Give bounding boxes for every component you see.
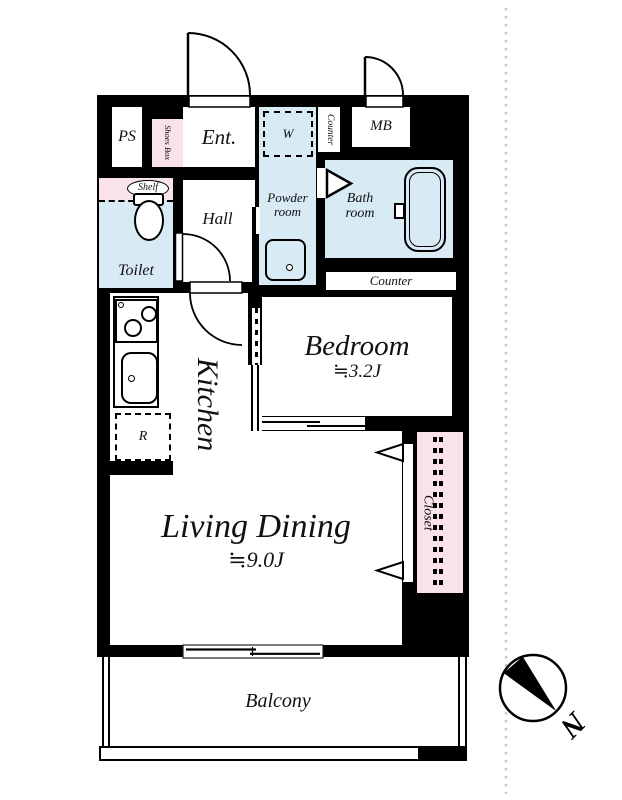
washer-label: W (283, 127, 294, 141)
mb-door-arc (365, 57, 403, 95)
balcony-corner-wall (420, 746, 467, 761)
balcony: Balcony (101, 657, 455, 746)
balcony-rail-right (458, 657, 467, 746)
refrigerator-label: R (139, 430, 148, 445)
meter-box-label: MB (370, 119, 392, 135)
stove-burner-icon (141, 306, 157, 322)
kitchen-label-box: Kitchen (186, 338, 228, 472)
room-hall: Hall (183, 180, 252, 282)
bathtub-inner-icon (409, 172, 441, 247)
bath-room-label: Bath room (337, 192, 383, 221)
bedroom-label: Bedroom (304, 331, 409, 361)
powder-room-label: Powder room (263, 191, 313, 218)
room-bedroom: Bedroom ≒3.2J (262, 297, 452, 416)
closet-door-panel (402, 443, 414, 583)
washbasin-drain-icon (286, 264, 293, 271)
stove-burner-icon (124, 319, 142, 337)
washer-space: W (263, 111, 313, 157)
shoes-box: Shoes Box (152, 119, 183, 167)
meter-box: MB (352, 107, 410, 147)
sliding-door-hall-powder-b (256, 207, 260, 234)
compass-north-label: N (553, 705, 593, 745)
kitchen-label: Kitchen (191, 358, 223, 451)
closet-hanger-dashes (433, 437, 437, 588)
floor-plan: PS Shoes Box Ent. Hall Powder room W Cou… (0, 0, 622, 800)
closet: Closet (417, 432, 463, 593)
washbasin-icon (265, 239, 306, 281)
compass-needle-icon (504, 657, 557, 712)
stove-knob-icon (118, 302, 124, 308)
sliding-door-hall-powder-a (251, 180, 255, 207)
counter-kitchen-label: Counter (370, 274, 413, 288)
toilet-bowl-icon (134, 200, 164, 241)
ps-label: PS (118, 129, 136, 146)
living-dining-size-label: ≒9.0J (228, 548, 284, 571)
shoes-box-label: Shoes Box (163, 125, 172, 160)
bedroom-pocket-door-track (252, 308, 260, 365)
balcony-rail-left (102, 657, 110, 746)
balcony-rail-bottom (99, 746, 420, 761)
kitchen-sink-icon (121, 352, 158, 404)
counter-kitchen-strip: Counter (325, 271, 457, 291)
bedroom-size-label: ≒3.2J (333, 362, 381, 382)
sink-drain-icon (128, 375, 135, 382)
room-ps: PS (112, 107, 142, 167)
toilet-label: Toilet (118, 263, 154, 280)
refrigerator-space: R (115, 413, 171, 461)
balcony-label: Balcony (245, 691, 311, 712)
counter-upper: Counter (318, 107, 340, 152)
living-dining-label-box: Living Dining ≒9.0J (110, 470, 402, 610)
compass-circle (500, 655, 566, 721)
room-entrance: Ent. (183, 107, 255, 167)
entrance-door-arc (188, 33, 250, 95)
counter-upper-label: Counter (324, 114, 334, 145)
living-dining-label: Living Dining (161, 509, 351, 545)
bedroom-sliding-door-bottom (262, 416, 365, 431)
bath-faucet-icon (394, 203, 405, 219)
closet-hanger-dashes (439, 437, 443, 588)
entrance-label: Ent. (202, 126, 236, 148)
bedroom-sliding-door-left (248, 365, 262, 431)
hall-label: Hall (202, 210, 232, 228)
